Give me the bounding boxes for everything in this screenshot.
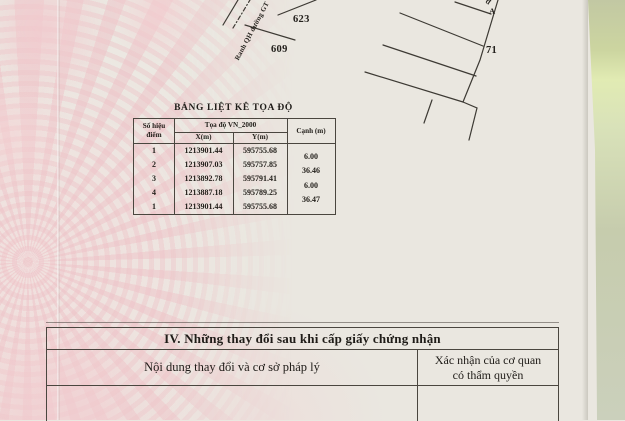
- point-no: 1: [134, 202, 174, 211]
- boundary-corner-line: [463, 102, 477, 140]
- section-iv-table: IV. Những thay đổi sau khi cấp giấy chứn…: [46, 327, 559, 421]
- header-y: Y(m): [233, 132, 287, 143]
- header-point-no-line1: Số hiệu: [143, 122, 166, 131]
- table-row: 2 1213907.03 595757.85: [134, 157, 287, 171]
- y-value: 595755.68: [233, 146, 287, 155]
- parcel-label-71: 71: [486, 46, 497, 57]
- section-iv-empty-left: [47, 386, 417, 421]
- y-value: 595757.85: [233, 160, 287, 169]
- section-iv-empty-row: [47, 386, 558, 421]
- y-value: 595789.25: [233, 188, 287, 197]
- boundary-tick-line: [424, 100, 432, 123]
- x-value: 1213907.03: [174, 160, 233, 169]
- header-x: X(m): [174, 132, 233, 143]
- table-row: 3 1213892.78 595791.41: [134, 171, 287, 185]
- point-label-a: A: [489, 7, 495, 16]
- edge-length: 6.00: [287, 151, 335, 163]
- point-no: 1: [134, 146, 174, 155]
- point-no: 4: [134, 188, 174, 197]
- section-divider-line: [46, 322, 559, 323]
- y-value: 595791.41: [233, 174, 287, 183]
- coordinate-table-title: BẢNG LIỆT KÊ TỌA ĐỘ: [133, 103, 334, 113]
- table-row: 4 1213887.18 595789.25: [134, 186, 287, 200]
- right-header-line1: Xác nhận của cơ quan: [435, 353, 541, 368]
- section-iv-left-header: Nội dung thay đổi và cơ sở pháp lý: [47, 350, 417, 385]
- section-iv-empty-right: [417, 386, 558, 421]
- hatch-line-4: [365, 72, 463, 102]
- section-iv-title: IV. Những thay đổi sau khi cấp giấy chứn…: [47, 328, 558, 350]
- parcel-label-623: 623: [293, 15, 310, 26]
- road-edge-line: [223, 0, 238, 25]
- coordinate-rows: 1 1213901.44 595755.68 2 1213907.03 5957…: [134, 143, 287, 214]
- parcel-623-line: [278, 0, 316, 15]
- section-iv-right-header: Xác nhận của cơ quan có thẩm quyền: [417, 350, 558, 385]
- header-point-no: Số hiệu điểm: [134, 119, 174, 143]
- section-iv-header-row: Nội dung thay đổi và cơ sở pháp lý Xác n…: [47, 350, 558, 386]
- point-no: 2: [134, 160, 174, 169]
- x-value: 1213901.44: [174, 202, 233, 211]
- right-header-line2: có thẩm quyền: [453, 368, 524, 383]
- header-coord-system: Tọa độ VN_2000: [174, 119, 287, 132]
- hatch-line-2: [400, 13, 483, 46]
- coordinate-table: Số hiệu điểm Tọa độ VN_2000 X(m) Y(m) Cạ…: [133, 118, 336, 215]
- edge-length: 36.46: [287, 165, 335, 177]
- edge-length: 36.47: [287, 194, 335, 206]
- parcel-label-609: 609: [271, 45, 288, 56]
- table-row: 1 1213901.44 595755.68: [134, 143, 287, 157]
- edge-length: 6.00: [287, 180, 335, 192]
- x-value: 1213892.78: [174, 174, 233, 183]
- header-point-no-line2: điểm: [146, 131, 161, 140]
- header-edge: Cạnh (m): [287, 119, 335, 143]
- point-no: 3: [134, 174, 174, 183]
- table-row: 1 1213901.44 595755.68: [134, 200, 287, 214]
- hatch-line-3: [383, 45, 476, 76]
- x-value: 1213901.44: [174, 146, 233, 155]
- x-value: 1213887.18: [174, 188, 233, 197]
- certificate-photo: 623 609 71 A đ Ranh QH đường GT BẢNG LIỆ…: [0, 0, 625, 420]
- y-value: 595755.68: [233, 202, 287, 211]
